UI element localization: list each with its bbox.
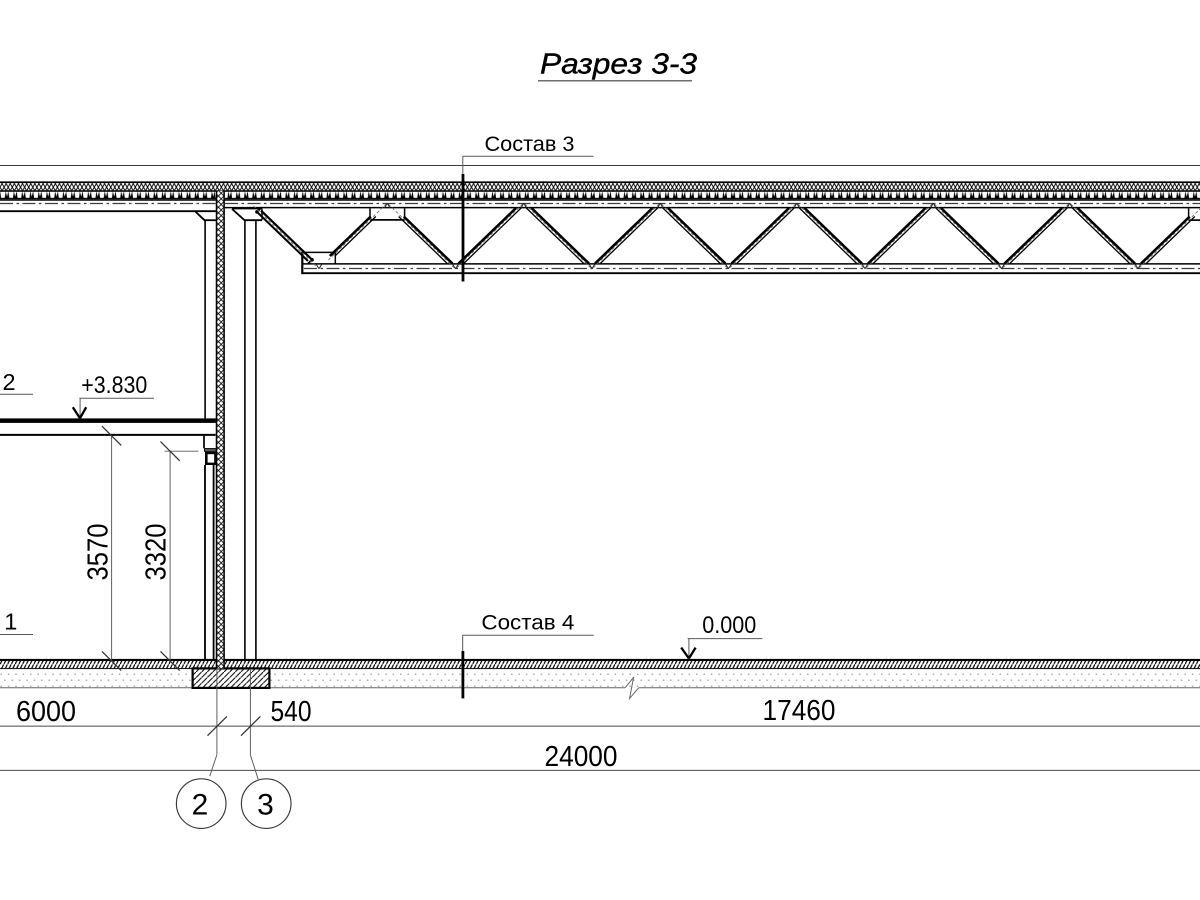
svg-text:0.000: 0.000 (702, 612, 756, 639)
svg-text:2: 2 (192, 789, 209, 822)
svg-text:2: 2 (3, 369, 16, 395)
svg-text:3570: 3570 (82, 524, 114, 581)
svg-text:Состав 4: Состав 4 (481, 611, 574, 635)
svg-text:Разрез 3-3: Разрез 3-3 (540, 48, 697, 80)
svg-text:Состав 3: Состав 3 (485, 132, 575, 156)
svg-text:3: 3 (257, 789, 274, 822)
svg-text:17460: 17460 (763, 695, 836, 727)
svg-text:6000: 6000 (16, 696, 76, 728)
svg-text:+3.830: +3.830 (81, 372, 147, 399)
svg-text:1: 1 (4, 608, 17, 634)
svg-text:3320: 3320 (140, 524, 172, 581)
svg-text:24000: 24000 (545, 741, 618, 773)
svg-text:540: 540 (271, 696, 312, 728)
